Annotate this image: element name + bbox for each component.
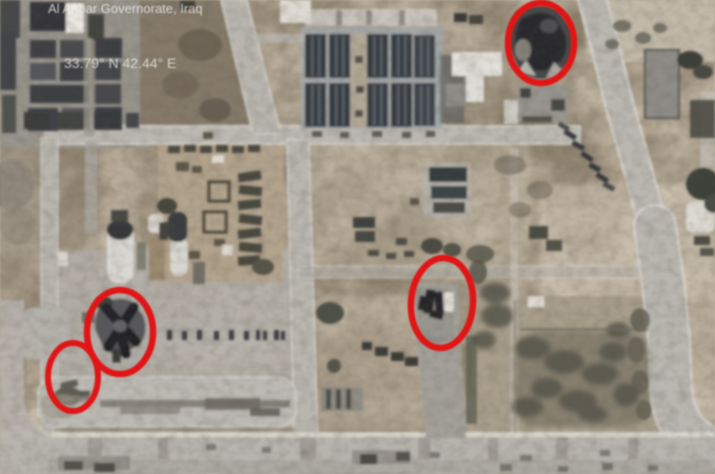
svg-text:Al Anbar Governorate, Iraq: Al Anbar Governorate, Iraq [48,1,203,16]
svg-text:33.79° N 42.44° E: 33.79° N 42.44° E [64,55,176,71]
